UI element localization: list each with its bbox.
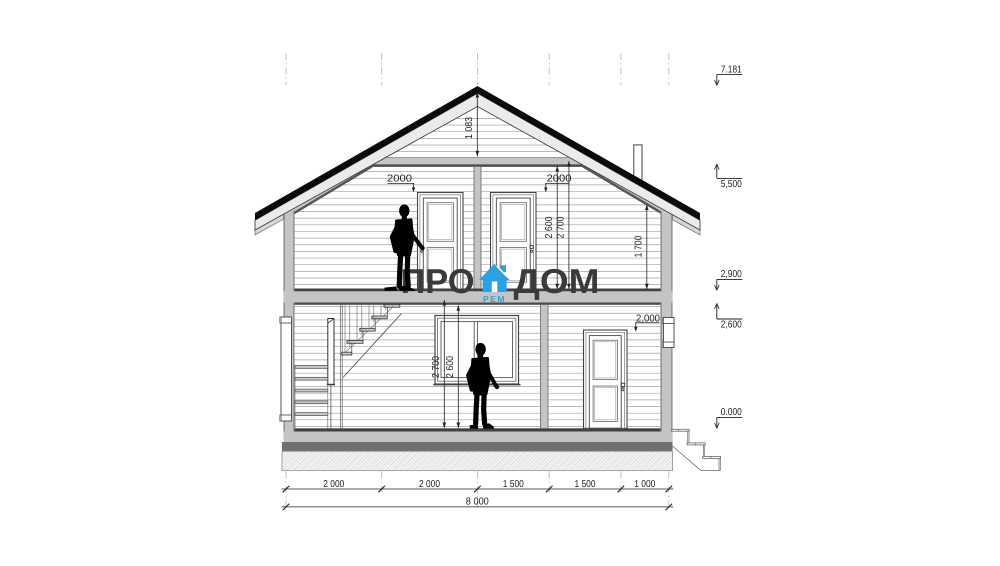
svg-text:2 600: 2 600 (544, 216, 555, 238)
svg-text:ПРО: ПРО (401, 263, 475, 301)
svg-text:2,600: 2,600 (721, 319, 742, 330)
svg-text:1 000: 1 000 (634, 479, 655, 490)
svg-text:2 700: 2 700 (556, 216, 567, 238)
svg-text:1 083: 1 083 (464, 117, 475, 139)
svg-text:5,500: 5,500 (721, 179, 742, 190)
svg-text:0.000: 0.000 (721, 407, 742, 418)
svg-text:ДОМ: ДОМ (514, 263, 600, 301)
svg-text:7.181: 7.181 (721, 64, 742, 75)
svg-text:2,900: 2,900 (721, 269, 742, 280)
svg-text:1 500: 1 500 (575, 479, 596, 490)
svg-text:2 700: 2 700 (431, 356, 442, 378)
svg-text:2 600: 2 600 (445, 356, 456, 378)
svg-text:1 500: 1 500 (503, 479, 524, 490)
svg-text:РЕМ: РЕМ (483, 294, 506, 304)
svg-text:2 000: 2 000 (419, 479, 440, 490)
svg-text:2 000: 2 000 (323, 479, 344, 490)
svg-text:8 000: 8 000 (466, 497, 489, 508)
svg-text:1 700: 1 700 (633, 235, 644, 257)
